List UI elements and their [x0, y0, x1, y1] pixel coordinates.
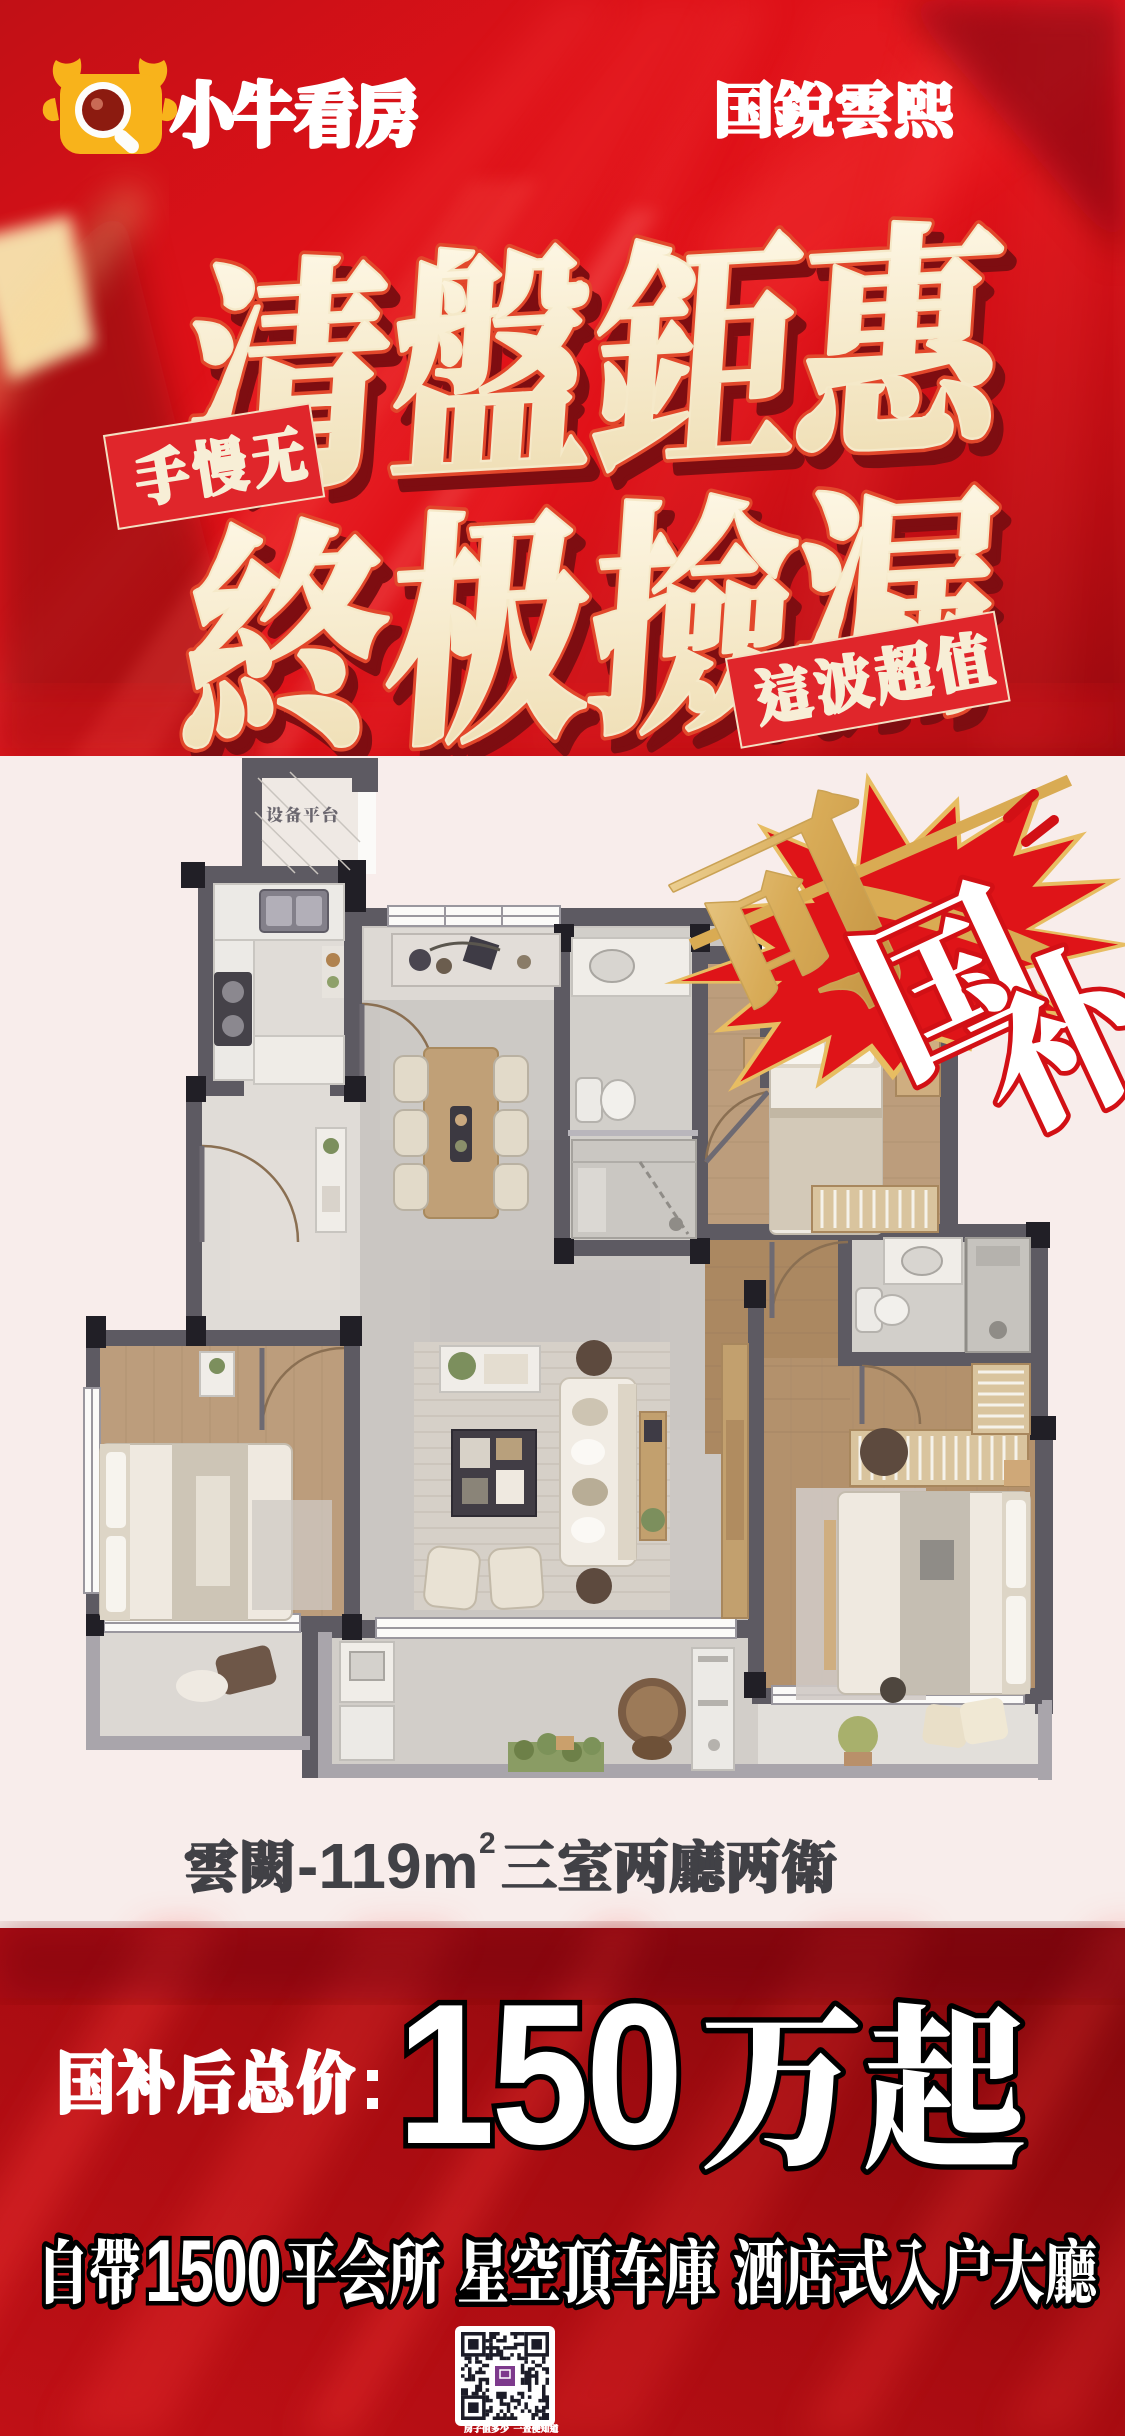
svg-text:2: 2: [479, 1827, 496, 1860]
svg-text:-119m: -119m: [297, 1830, 478, 1902]
svg-text:1500: 1500: [145, 2223, 280, 2321]
svg-text:150: 150: [397, 1961, 680, 2185]
